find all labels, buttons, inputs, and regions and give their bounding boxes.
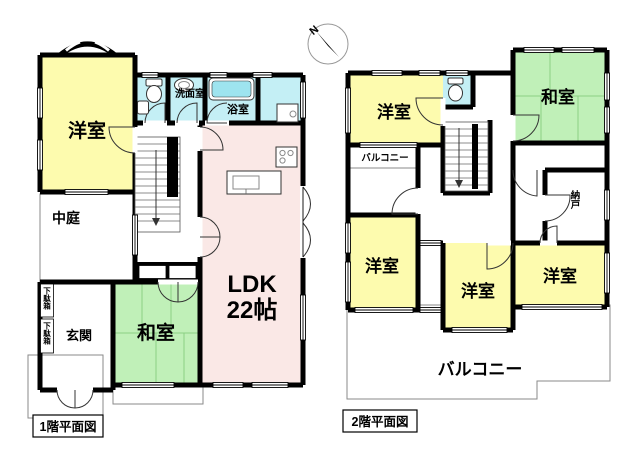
courtyard-area (40, 194, 135, 282)
label-balcony-small: バルコニー (361, 152, 408, 164)
label-western-2f-nw: 洋室 (377, 102, 411, 122)
second-floor-plan: 洋室 和室 バルコニー 納戸 洋室 洋室 洋室 バルコニー 2階平面図 (343, 48, 610, 433)
label-courtyard: 中庭 (52, 210, 81, 226)
caption-2f: 2階平面図 (343, 410, 417, 432)
kitchen-stove (276, 147, 297, 167)
label-western-2f-se: 洋室 (543, 266, 577, 286)
label-ldk-size: 22帖 (227, 297, 278, 324)
label-western-2f-s: 洋室 (461, 281, 495, 301)
label-ldk-name: LDK (227, 271, 277, 298)
utility-counter-1f (277, 104, 298, 122)
label-japanese-2f: 和室 (541, 87, 575, 107)
label-entrance: 玄関 (66, 328, 92, 343)
floor-plan-page: 洋室 中庭 玄関 下駄箱 下駄箱 洗面室 浴室 和室 LDK 22帖 1階平面図 (0, 0, 640, 459)
label-western-2f-sw: 洋室 (365, 256, 399, 276)
label-western-room-1f: 洋室 (68, 119, 106, 142)
caption-2f-text: 2階平面図 (352, 414, 409, 429)
compass: N (308, 23, 348, 64)
caption-1f-text: 1階平面図 (40, 419, 97, 434)
hand-sink-1f (138, 101, 149, 114)
label-washroom: 洗面室 (175, 87, 205, 100)
stairs-1f (135, 137, 180, 232)
toilet-2f (448, 78, 463, 101)
label-bathroom: 浴室 (227, 102, 249, 116)
bathtub-1f (209, 78, 254, 100)
floor-plan-drawing: 洋室 中庭 玄関 下駄箱 下駄箱 洗面室 浴室 和室 LDK 22帖 1階平面図 (0, 0, 640, 459)
closet-1f (135, 262, 200, 282)
kitchen-counter (227, 171, 281, 194)
label-shoe-box-1: 下駄箱 (42, 287, 51, 311)
label-storage: 納戸 (569, 189, 581, 210)
first-floor-plan: 洋室 中庭 玄関 下駄箱 下駄箱 洗面室 浴室 和室 LDK 22帖 1階平面図 (28, 42, 311, 437)
caption-1f: 1階平面図 (33, 415, 103, 437)
toilet-1f (146, 79, 162, 103)
stairs-2f (445, 122, 488, 191)
label-balcony-large: バルコニー (438, 360, 523, 379)
label-shoe-box-2: 下駄箱 (42, 322, 51, 346)
label-japanese-room-1f: 和室 (137, 321, 175, 344)
